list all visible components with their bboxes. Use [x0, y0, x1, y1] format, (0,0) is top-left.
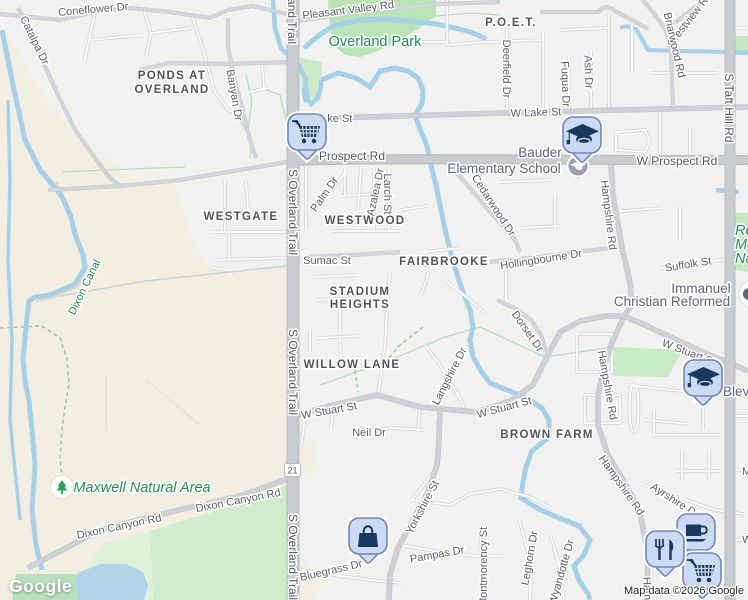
svg-text:S Overland Trail: S Overland Trail — [286, 514, 300, 600]
svg-text:W Lake St: W Lake St — [510, 106, 561, 120]
svg-text:Overland Park: Overland Park — [329, 34, 422, 50]
svg-text:P.O.E.T.: P.O.E.T. — [485, 17, 537, 29]
svg-text:HEIGHTS: HEIGHTS — [330, 299, 390, 311]
svg-text:WILLOW LANE: WILLOW LANE — [304, 359, 401, 371]
svg-text:Prospect Rd: Prospect Rd — [319, 149, 385, 163]
svg-text:Map data ©2026 Google: Map data ©2026 Google — [624, 585, 744, 597]
svg-text:FAIRBROOKE: FAIRBROOKE — [399, 256, 489, 268]
svg-text:Bauder: Bauder — [518, 145, 562, 160]
svg-text:Montmorency St: Montmorency St — [478, 527, 490, 600]
svg-text:WESTWOOD: WESTWOOD — [325, 215, 406, 227]
svg-text:WESTGATE: WESTGATE — [204, 211, 279, 223]
svg-text:Ash Dr: Ash Dr — [581, 55, 594, 89]
svg-text:21: 21 — [287, 466, 297, 476]
svg-text:Blevins: Blevins — [723, 384, 748, 399]
svg-text:S Taft Hill Rd: S Taft Hill Rd — [722, 73, 736, 142]
svg-text:S Overland Trail: S Overland Trail — [286, 329, 300, 415]
svg-text:Larch St: Larch St — [381, 174, 393, 215]
svg-text:Mo: Mo — [742, 466, 748, 478]
svg-text:S Overland Trail: S Overland Trail — [285, 0, 299, 44]
svg-text:Fuqua Dr: Fuqua Dr — [558, 61, 572, 108]
svg-text:Google: Google — [9, 576, 72, 596]
svg-text:W: W — [742, 534, 748, 546]
svg-text:Christian Reformed: Christian Reformed — [614, 294, 730, 309]
svg-text:Natu: Natu — [735, 251, 748, 267]
svg-text:Maxwell Natural Area: Maxwell Natural Area — [73, 480, 210, 496]
svg-text:BROWN FARM: BROWN FARM — [500, 429, 594, 441]
svg-text:Elementary School: Elementary School — [447, 161, 560, 176]
svg-text:OVERLAND: OVERLAND — [135, 84, 210, 96]
svg-text:W Prospect Rd: W Prospect Rd — [637, 154, 718, 168]
svg-text:Deerfield Dr: Deerfield Dr — [500, 40, 512, 99]
svg-text:S Overland Trail: S Overland Trail — [286, 169, 300, 255]
svg-text:Sumac St: Sumac St — [303, 255, 351, 267]
svg-text:PONDS AT: PONDS AT — [138, 70, 207, 82]
svg-text:Neil Dr: Neil Dr — [352, 427, 386, 439]
svg-text:STADIUM: STADIUM — [330, 286, 391, 298]
